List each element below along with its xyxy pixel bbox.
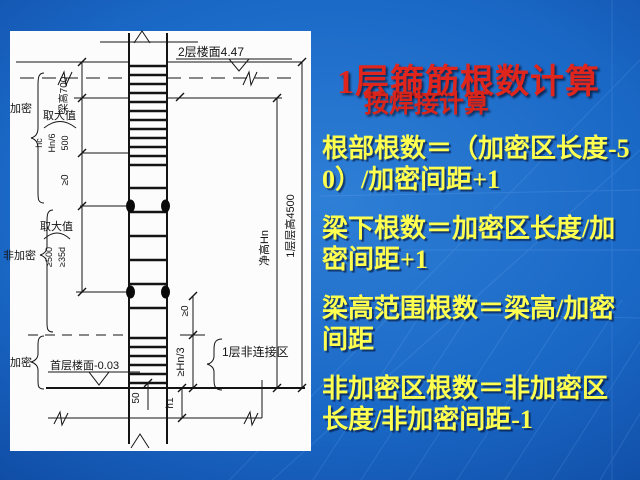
- ge35d-label: ≥35d: [57, 247, 67, 267]
- ge-hn3-label: ≥Hn/3: [175, 347, 187, 376]
- beam-height-label: 梁高700: [57, 76, 70, 113]
- level-symbols: [48, 59, 292, 385]
- dense-top-label: 加密: [10, 101, 32, 115]
- take-max-top-label: 取大值: [43, 108, 76, 122]
- net-height-label: 净高Hn: [257, 230, 271, 266]
- h1-label: h1: [165, 397, 176, 409]
- stirrups-group: [129, 66, 167, 383]
- v50-label: 50: [131, 392, 142, 404]
- subtitle: 按焊接计算: [364, 84, 624, 120]
- ge0-left-label: ≥0: [60, 174, 71, 185]
- formula-beam-height-count: 梁高范围根数＝梁高/加密间距: [322, 293, 630, 355]
- formula-under-beam-count: 梁下根数＝加密区长度/加密间距+1: [322, 213, 630, 275]
- v500-label: 500: [60, 135, 70, 150]
- hn6-label: Hn/6: [47, 133, 57, 152]
- non-dense-label: 非加密: [3, 248, 36, 262]
- body-text: 根部根数＝（加密区长度-50）/加密间距+1 梁下根数＝加密区长度/加密间距+1…: [322, 133, 630, 453]
- hc-label: hc: [34, 138, 44, 148]
- story-height-label: 1层层高4500: [283, 194, 297, 258]
- take-max-mid-label: 取大值: [40, 219, 73, 233]
- non-connect-zone-label: 1层非连接区: [222, 344, 289, 359]
- ge0-right-label: ≥0: [180, 305, 191, 316]
- formula-non-dense-count: 非加密区根数＝非加密区长度/非加密间距-1: [322, 373, 630, 435]
- formula-root-count: 根部根数＝（加密区长度-50）/加密间距+1: [322, 133, 630, 195]
- ge500-label: ≥500: [44, 247, 54, 267]
- floor1-level-label: 首层楼面-0.03: [50, 358, 119, 372]
- dense-bottom-label: 加密: [10, 355, 32, 369]
- floor2-level-label: 2层楼面4.47: [178, 44, 244, 59]
- slide: { "slide": { "title": "1层箍筋根数计算", "subti…: [0, 0, 640, 480]
